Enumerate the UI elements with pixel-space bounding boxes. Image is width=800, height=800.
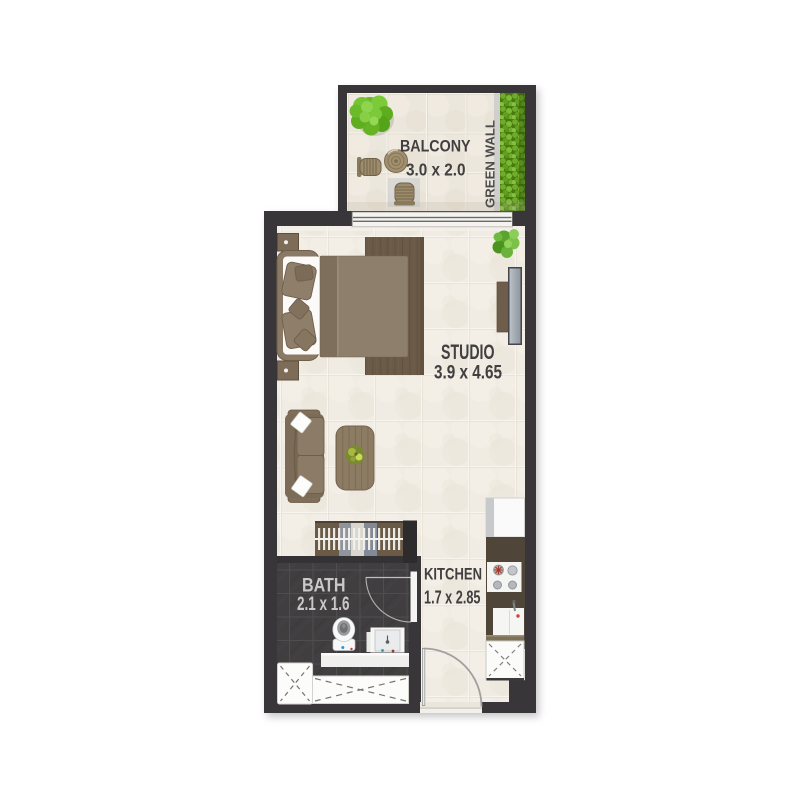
svg-text:KITCHEN: KITCHEN [424, 566, 482, 584]
svg-text:2.1 x 1.6: 2.1 x 1.6 [297, 594, 350, 615]
svg-text:1.7 x 2.85: 1.7 x 2.85 [424, 587, 481, 608]
svg-text:GREEN WALL: GREEN WALL [484, 120, 498, 208]
svg-text:BALCONY: BALCONY [400, 137, 471, 155]
svg-text:3.9 x 4.65: 3.9 x 4.65 [434, 361, 502, 383]
svg-text:3.0 x 2.0: 3.0 x 2.0 [406, 159, 466, 179]
